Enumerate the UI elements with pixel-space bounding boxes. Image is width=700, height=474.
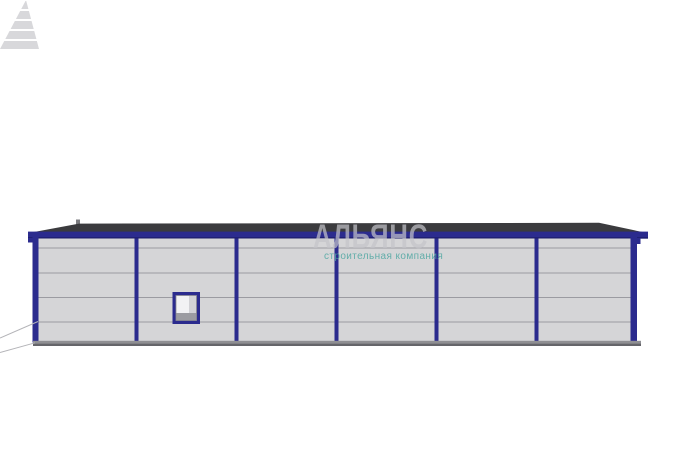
column-post	[535, 239, 539, 342]
render-canvas: АЛЬЯНС строительная компания	[0, 0, 700, 474]
column-post	[235, 239, 239, 342]
corner-post-right	[631, 232, 638, 343]
eave-trim-shadow	[28, 237, 648, 238]
building-elevation	[0, 0, 700, 474]
window	[173, 292, 201, 324]
column-post	[335, 239, 339, 342]
foundation-base	[33, 341, 641, 344]
column-post	[135, 239, 139, 342]
window-sill	[176, 313, 197, 321]
column-post	[435, 239, 439, 342]
ground-guide-line	[0, 343, 35, 353]
corner-post-left	[33, 232, 39, 343]
ground-guide-line	[0, 322, 38, 339]
roof	[30, 223, 646, 233]
foundation-base-shadow	[33, 344, 641, 346]
